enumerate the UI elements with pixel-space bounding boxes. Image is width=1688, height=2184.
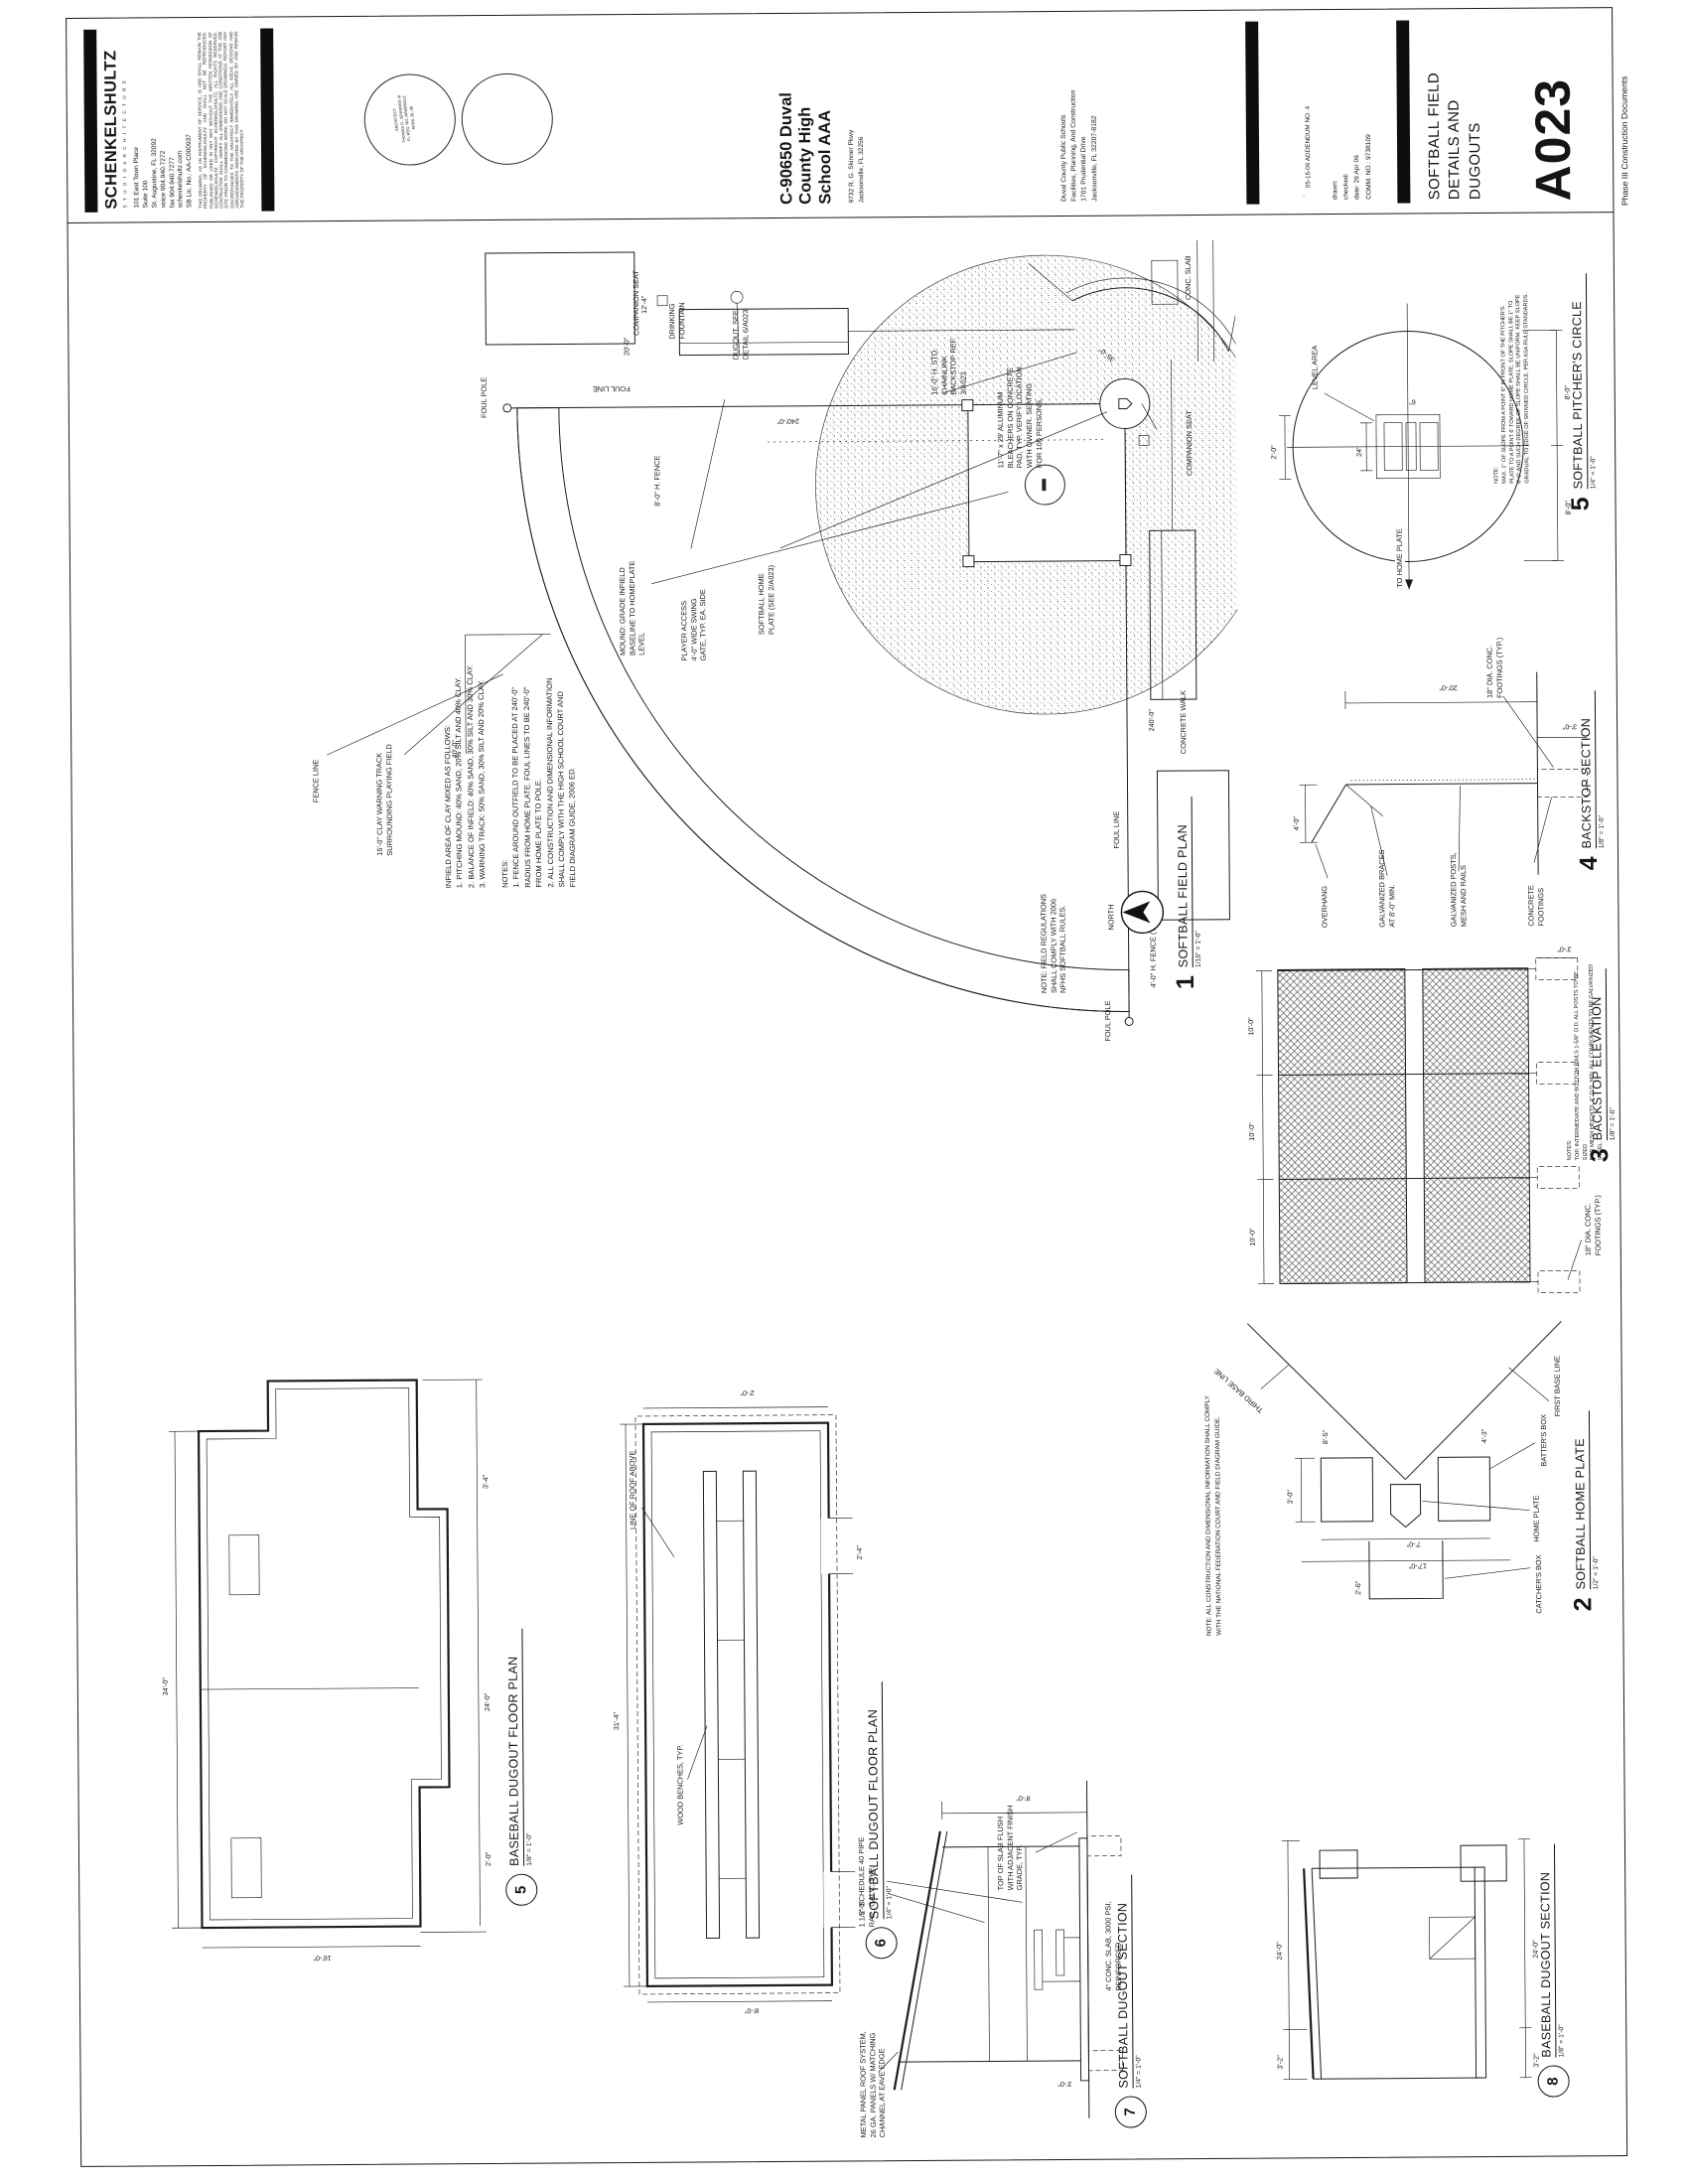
el-caption-scale: 1/8" = 1'-0" <box>1607 968 1617 1140</box>
plan-dim-240-v: 240'-0" <box>777 417 799 426</box>
hp-dim1: 3'-0" <box>1285 1490 1294 1504</box>
project-name: C-90650 Duval County High School AAA <box>777 92 836 205</box>
pc-caption-number: 5 <box>1569 497 1592 510</box>
sec-caption-title: BACKSTOP SECTION <box>1577 690 1597 849</box>
pc-dim-top: 2'-0" <box>1269 445 1278 459</box>
bbsect-caption: 8 BASEBALL DUGOUT SECTION 1/8" = 1'-0" <box>1536 1844 1570 2098</box>
hp-dim5: 2'-6" <box>1353 1581 1362 1595</box>
sbsect-caption-number: 7 <box>1115 2096 1147 2127</box>
sec-caption: 4 BACKSTOP SECTION 1/8" = 1'-0" <box>1577 690 1606 871</box>
hp-caption-title: SOFTBALL HOME PLATE <box>1571 1410 1591 1589</box>
hp-home-plate-label: HOME PLATE <box>1532 1496 1542 1542</box>
firm-disclaimer: THIS DRAWING, AS AN INSTRUMENT OF SERVIC… <box>197 32 245 209</box>
sbplan-roof-label: LINE OF ROOF ABOVE <box>628 1420 637 1529</box>
el-caption-title: BACKSTOP ELEVATION <box>1588 968 1608 1140</box>
plan-caption-number: 1 <box>1175 975 1197 989</box>
north-arrow-icon <box>1118 888 1166 936</box>
sheet-number: A023 <box>1524 78 1583 202</box>
plan-caption-title: SOFTBALL FIELD PLAN <box>1174 797 1194 967</box>
sec-footings-label: CONCRETE FOOTINGS <box>1526 857 1546 927</box>
plan-dugout-label: DUGOUT, SEE DETAIL 6/A023 <box>731 280 751 360</box>
detail-softball-dugout-section: METAL PANEL ROOF SYSTEM, 26 GA. PANELS W… <box>856 1762 1147 2141</box>
sbplan-dim-d2: 2'-4" <box>855 1545 864 1559</box>
plan-warning-track-label: 15'-0" CLAY WARNING TRACK SURROUNDING PL… <box>374 737 394 856</box>
el-dim-c: 10'-0" <box>1246 1017 1255 1035</box>
revision-delta-icon <box>1303 192 1311 200</box>
pc-note: NOTE: MAX. 1" OF SLOPE FROM A POINT 6" I… <box>1492 270 1533 484</box>
sbsect-dim-b: 3'-0" <box>1057 2080 1071 2089</box>
hp-caption-number: 2 <box>1572 1597 1595 1611</box>
architect-seal-text: ARCHITECT THOMAS G. JENNINGS III FL REG.… <box>390 88 419 150</box>
plan-fence8-label: 8'-0" H. FENCE <box>652 437 662 507</box>
phase-note: Phase III Construction Documents <box>1618 7 1629 206</box>
plan-caption-scale: 1/16" = 1'-0" <box>1193 797 1202 967</box>
pc-caption-title: SOFTBALL PITCHER'S CIRCLE <box>1568 273 1589 489</box>
firm-name: SCHENKELSHULTZ <box>101 50 121 209</box>
drawing-sheet: SCHENKELSHULTZ S T U D I O A R C H I T E… <box>60 0 1663 2177</box>
hp-caption: 2 SOFTBALL HOME PLATE 1/2" = 1'-0" <box>1571 1410 1600 1611</box>
pc-caption-scale: 1/4" = 1'-0" <box>1587 273 1598 489</box>
hp-dim3: 17'-0" <box>1409 1561 1427 1570</box>
sbplan-dim-dep: 8'-0" <box>745 2006 759 2015</box>
titleblock-bar-3 <box>1245 22 1259 205</box>
bbplan-dim-b3: 2'-0" <box>484 1852 492 1866</box>
plan-fence-line-label: FENCE LINE <box>311 760 321 803</box>
architect-seal: ARCHITECT THOMAS G. JENNINGS III FL REG.… <box>363 73 456 166</box>
plan-slab-label: CONC. SLAB <box>1184 245 1194 300</box>
plan-mound-label: MOUND: GRADE INFIELD BASELINE TO HOMEPLA… <box>618 546 647 655</box>
sbsect-caption-title: SOFTBALL DUGOUT SECTION <box>1113 1875 1133 2089</box>
pc-caption: 5 SOFTBALL PITCHER'S CIRCLE 1/4" = 1'-0" <box>1568 273 1598 510</box>
bbplan-caption-scale: 1/8" = 1'-0" <box>522 1628 533 1865</box>
owner-address: Duval County Public Schools Facilities, … <box>1059 89 1101 202</box>
plan-dim-20: 20'-0" <box>622 338 631 356</box>
sbplan-dim-d3: 2'-0" <box>740 1388 754 1397</box>
sec-dim-h: 20'-0" <box>1439 683 1457 692</box>
el-dim-a: 10'-0" <box>1248 1228 1257 1245</box>
bbplan-dim-len: 34'-0" <box>161 1677 170 1695</box>
bbplan-caption-title: BASEBALL DUGOUT FLOOR PLAN <box>503 1628 524 1865</box>
plan-companion2-label: COMPANION SEAT <box>1185 406 1195 476</box>
detail-backstop-section: OVERHANG GALVANIZED BRACES AT 8'-0" MIN.… <box>1290 624 1610 934</box>
firm-address: 101 East Town Place Suite 100 St. August… <box>133 134 196 208</box>
hp-first-base-label: FIRST BASE LINE <box>1553 1356 1563 1417</box>
plan-gate-label: PLAYER ACCESS 4'-0" WIDE SWING GATE, TYP… <box>679 566 709 660</box>
sbsect-roof-label: METAL PANEL ROOF SYSTEM, 26 GA. PANELS W… <box>858 2008 888 2137</box>
sbplan-bench-label: WOOD BENCHES, TYP. <box>675 1716 685 1825</box>
backstop-elevation-drawing <box>1238 951 1613 1302</box>
plan-foul-pole-top-label: FOUL POLE <box>480 377 490 418</box>
plan-foul-line-v-label: FOUL LINE <box>593 383 631 393</box>
detail-softball-field-plan: FOUL POLE FOUL POLE FENCE LINE FOUL LINE… <box>73 232 1241 1055</box>
sec-braces-label: GALVANIZED BRACES AT 8'-0" MIN. <box>1377 838 1397 928</box>
bbplan-caption-number: 5 <box>505 1874 537 1906</box>
el-footing-label: 18" DIA. CONC. FOOTINGS (TYP.) <box>1583 1176 1603 1255</box>
project-address: 9732 R. G. Skinner Pkwy Jacksonville, FL… <box>847 130 867 204</box>
pc-dim-24: 24" <box>1354 446 1363 457</box>
bbsect-caption-title: BASEBALL DUGOUT SECTION <box>1536 1844 1556 2058</box>
blank-seal <box>461 73 553 166</box>
sbsect-rail-label: 1 1/2" SCHEDULE 40 PIPE RAIL, GALV., TYP… <box>857 1798 877 1927</box>
hp-batter-box-label: BATTER'S BOX <box>1539 1414 1549 1467</box>
plan-backstop-label: 16'-0" H. STD. CHAINLINK BACKSTOP REF. 3… <box>929 316 968 395</box>
pc-tohome-label: TO HOME PLATE <box>1395 528 1405 588</box>
sec-caption-number: 4 <box>1578 856 1601 870</box>
revision-text: 05-15-06 ADDENDUM NO. 4 <box>1305 106 1313 188</box>
pc-dim-6: 6" <box>1409 397 1416 406</box>
sec-posts-label: GALVANIZED POSTS, MESH AND RAILS <box>1449 837 1469 927</box>
detail-baseball-dugout-floor-plan: 34'-0" 16'-0" 24'-0" 3'-4" 2'-0" 5 BASEB… <box>118 1320 550 1988</box>
titleblock-bar-4 <box>1396 21 1410 204</box>
hp-dim4: 8'-5" <box>1321 1430 1330 1444</box>
hp-catcher-box-label: CATCHER'S BOX <box>1534 1554 1544 1613</box>
plan-notes-block: INFIELD AREA OF CLAY MIXED AS FOLLOWS: 1… <box>441 589 579 888</box>
plan-bleachers-label: 11'-7" x 29' ALUMINUM BLEACHERS ON CONCR… <box>995 339 1044 468</box>
bbsect-dim-t1: 3'-2" <box>1275 2055 1284 2069</box>
revision-entry: 05-15-06 ADDENDUM NO. 4 <box>1303 106 1313 200</box>
plan-field-note: NOTE: FIELD REGULATIONS SHALL COMPLY WIT… <box>1039 854 1068 993</box>
bbplan-dim-dep: 16'-0" <box>313 1954 331 1963</box>
credits-block: drawn: checked: date: 26 Apr 06 COMM. NO… <box>1330 134 1374 200</box>
pc-level-label: LEVEL AREA <box>1310 346 1320 390</box>
plan-dim-240-h: 240'-0" <box>1147 709 1156 731</box>
sbsect-dim-h: 8'-0" <box>1016 1794 1030 1803</box>
el-dim-depth: 3'-0" <box>1557 945 1571 953</box>
titleblock-bar-2 <box>260 28 274 211</box>
hp-caption-scale: 1/2" = 1'-0" <box>1590 1410 1600 1589</box>
plan-home-plate-label: SOFTBALL HOME PLATE (SEE 2/A023) <box>757 535 776 635</box>
baseball-dugout-plan-drawing <box>118 1320 550 1988</box>
sec-overhang-label: OVERHANG <box>1320 886 1330 928</box>
plan-caption: 1 SOFTBALL FIELD PLAN 1/16" = 1'-0" <box>1174 797 1202 989</box>
hp-dim6: 4'-3" <box>1479 1429 1488 1443</box>
bbplan-caption: 5 BASEBALL DUGOUT FLOOR PLAN 1/8" = 1'-0… <box>503 1628 537 1906</box>
north-label: NORTH <box>1106 904 1116 930</box>
plan-foul-pole-left-label: FOUL POLE <box>1103 1000 1113 1041</box>
sbplan-dim-len: 31'-4" <box>612 1712 621 1730</box>
el-caption-number: 3 <box>1589 1148 1612 1162</box>
sbsect-caption: 7 SOFTBALL DUGOUT SECTION 1/4" = 1'-0" <box>1113 1875 1147 2128</box>
firm-tagline: S T U D I O A R C H I T E C T U R E <box>122 78 128 208</box>
sec-dim-oh: 4'-0" <box>1292 816 1301 830</box>
plan-walk-label: CONCRETE WALK <box>1179 674 1189 754</box>
title-block: SCHENKELSHULTZ S T U D I O A R C H I T E… <box>66 7 1614 223</box>
detail-backstop-elevation: 10'-0" 10'-0" 10'-0" 3'-0" 18" DIA. CONC… <box>1238 951 1613 1302</box>
detail-softball-home-plate: NOTE: ALL CONSTRUCTION AND DIMENSIONAL I… <box>1200 1319 1600 1640</box>
plan-fountain-label: DRINKING FOUNTAIN <box>667 280 687 340</box>
sec-dim-ft: 3'-0" <box>1563 722 1577 731</box>
hp-dim2: 7'-0" <box>1407 1539 1421 1548</box>
plan-dim-12: 12'-4" <box>639 296 648 314</box>
sec-dia-label: 18" DIA. CONC. FOOTINGS (TYP.) <box>1484 629 1504 698</box>
detail-baseball-dugout-section: 3'-2" 24'-0" 3'-2" 24'-0" 8 BASEBALL DUG… <box>1234 1779 1565 2138</box>
bbsect-caption-number: 8 <box>1538 2065 1570 2097</box>
sec-caption-scale: 1/8" = 1'-0" <box>1596 690 1606 849</box>
sbsect-caption-scale: 1/4" = 1'-0" <box>1132 1875 1142 2089</box>
plan-foul-line-h-label: FOUL LINE <box>1112 811 1122 849</box>
el-dim-b: 10'-0" <box>1247 1122 1256 1140</box>
bbsect-dim-t2: 24'-0" <box>1275 1942 1284 1960</box>
sheet-title: SOFTBALL FIELD DETAILS AND DUGOUTS <box>1425 73 1486 201</box>
pitchers-circle-drawing <box>1258 266 1603 596</box>
titleblock-bar-1 <box>83 30 97 213</box>
bbsect-caption-scale: 1/8" = 1'-0" <box>1555 1844 1565 2058</box>
detail-softball-pitchers-circle: TO HOME PLATE LEVEL AREA 8'-0" 8'-0" 2'-… <box>1258 266 1603 596</box>
el-caption: 3 BACKSTOP ELEVATION 1/8" = 1'-0" <box>1588 968 1617 1162</box>
bbplan-dim-b2: 3'-4" <box>481 1475 490 1489</box>
bbplan-dim-b1: 24'-0" <box>483 1693 492 1711</box>
